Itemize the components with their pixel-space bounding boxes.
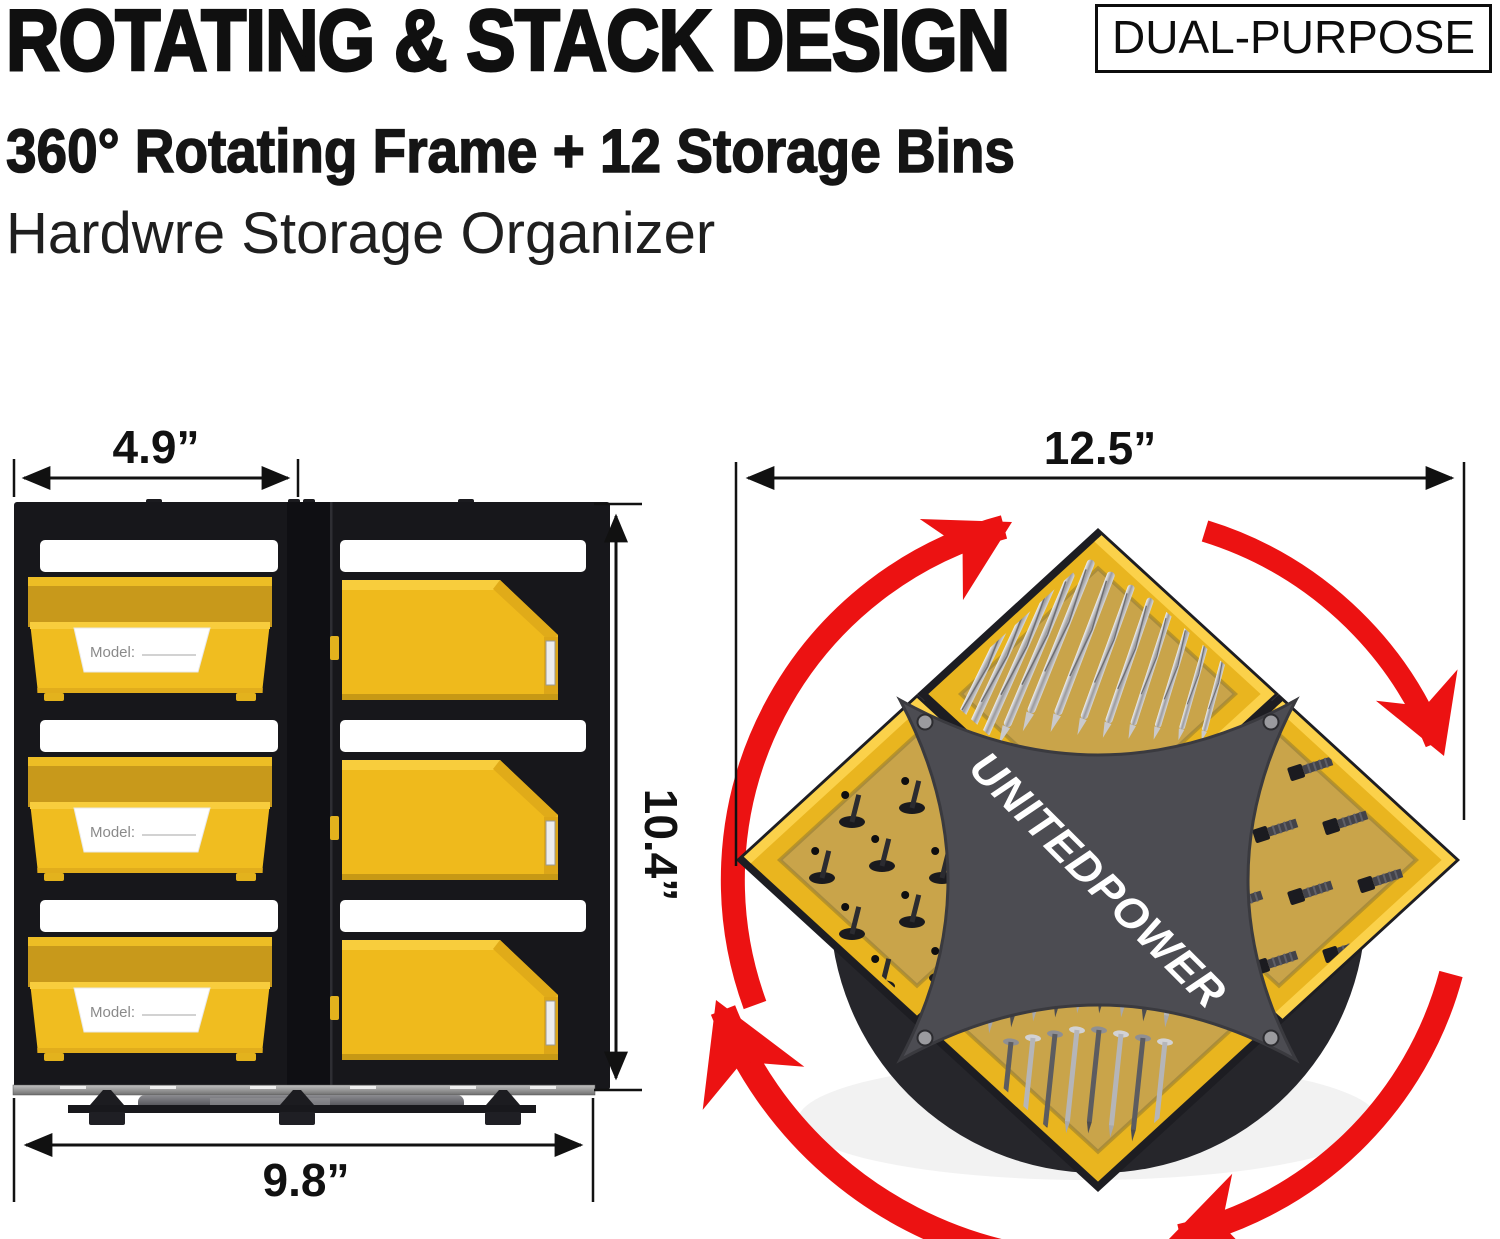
product-infographic: ROTATING & STACK DESIGN DUAL-PURPOSE 360…	[0, 0, 1500, 1239]
dim-label-9-8: 9.8”	[263, 1154, 350, 1206]
tagline: Hardwre Storage Organizer	[6, 200, 715, 267]
hub-plate: UNITEDPOWER	[900, 700, 1296, 1060]
page-title: ROTATING & STACK DESIGN	[6, 0, 1009, 91]
bin-label: Model:	[90, 1004, 135, 1021]
bin-front-view: Model:	[28, 757, 272, 881]
bin-front-view: Model:	[28, 577, 272, 701]
dimension-width-half: 4.9”	[14, 430, 298, 497]
dim-label-12-5: 12.5”	[1044, 430, 1157, 474]
bin-label: Model:	[90, 644, 135, 661]
top-view-figure: UNITEDPOWER 12.5”	[660, 430, 1500, 1239]
dual-purpose-badge: DUAL-PURPOSE	[1095, 4, 1492, 73]
rotating-base	[13, 1085, 595, 1125]
subtitle: 360° Rotating Frame + 12 Storage Bins	[6, 116, 1015, 186]
dim-label-4-9: 4.9”	[113, 430, 200, 473]
bin-front-view: Model:	[28, 937, 272, 1061]
bin-label: Model:	[90, 824, 135, 841]
front-view-figure: Model:	[0, 430, 700, 1239]
